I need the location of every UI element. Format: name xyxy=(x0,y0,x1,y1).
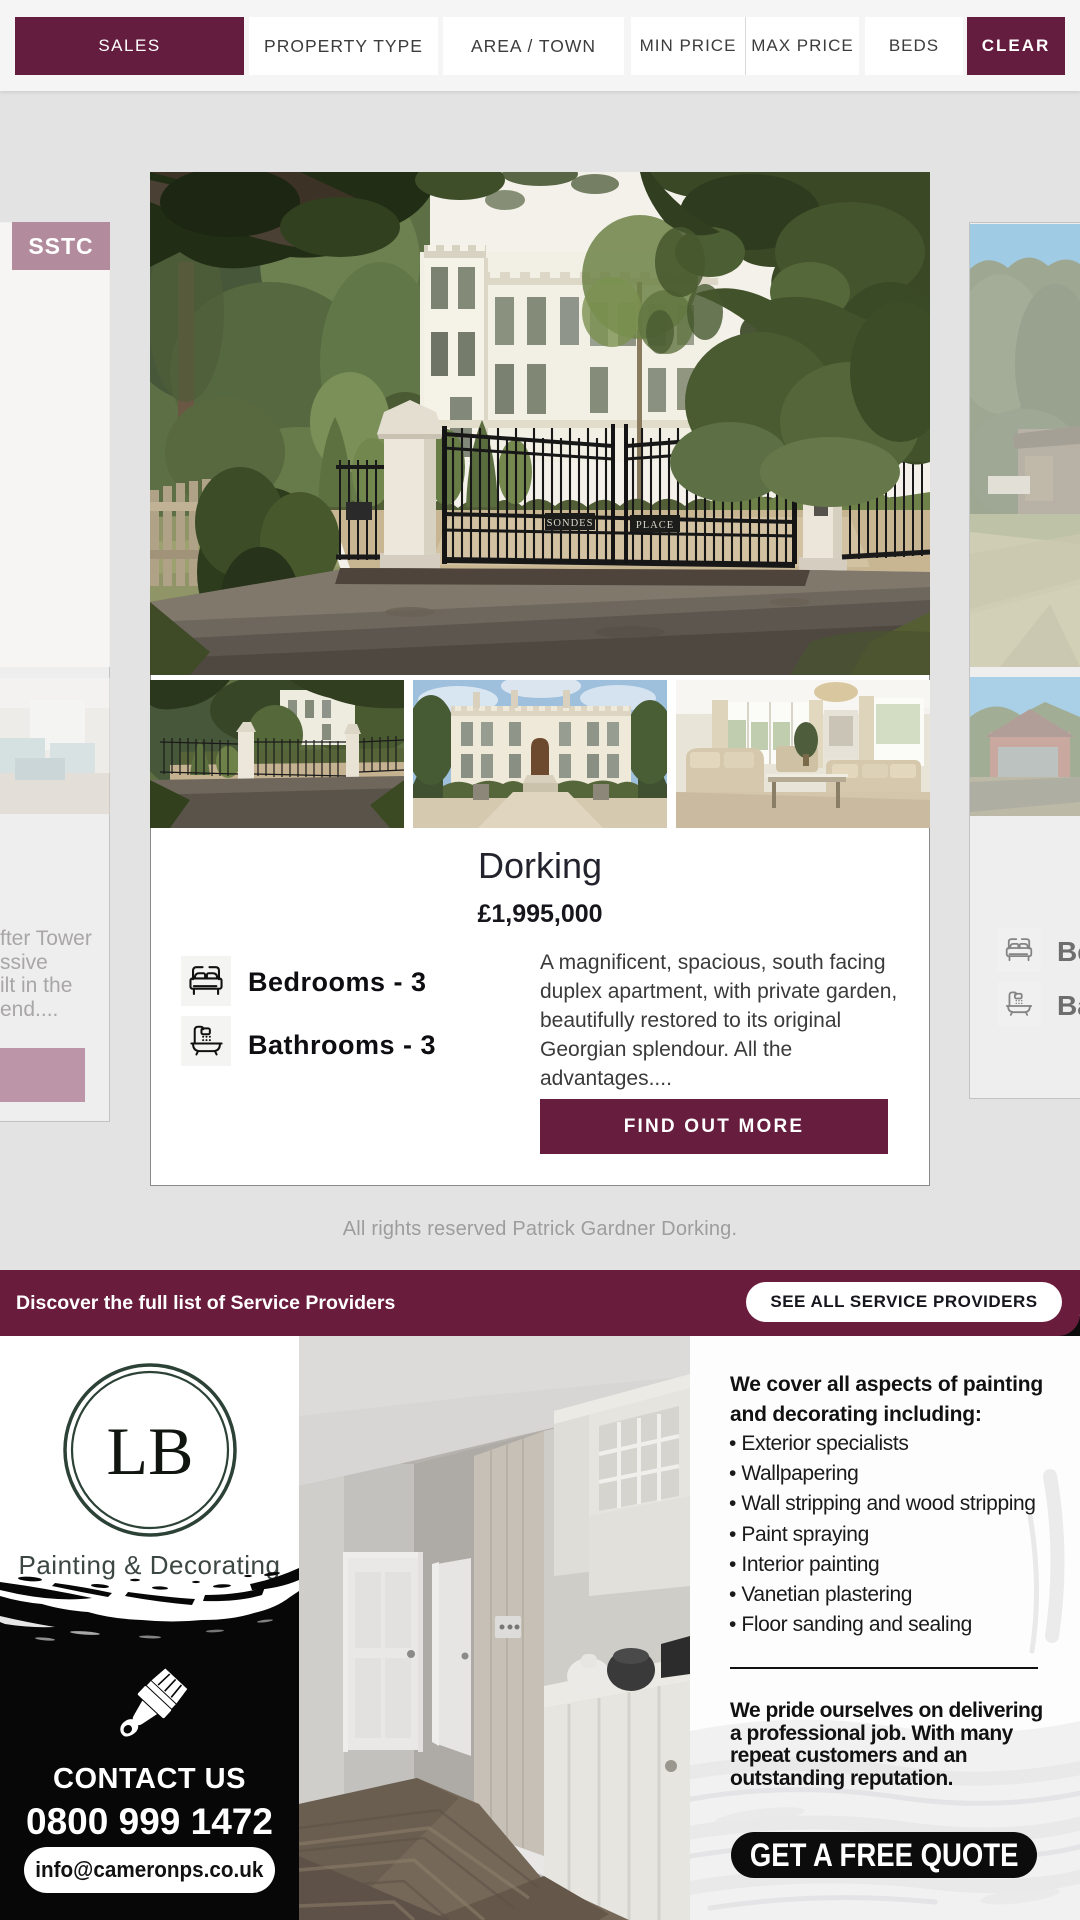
svg-text:SONDES: SONDES xyxy=(547,518,594,529)
svg-text:PLACE: PLACE xyxy=(636,520,674,531)
